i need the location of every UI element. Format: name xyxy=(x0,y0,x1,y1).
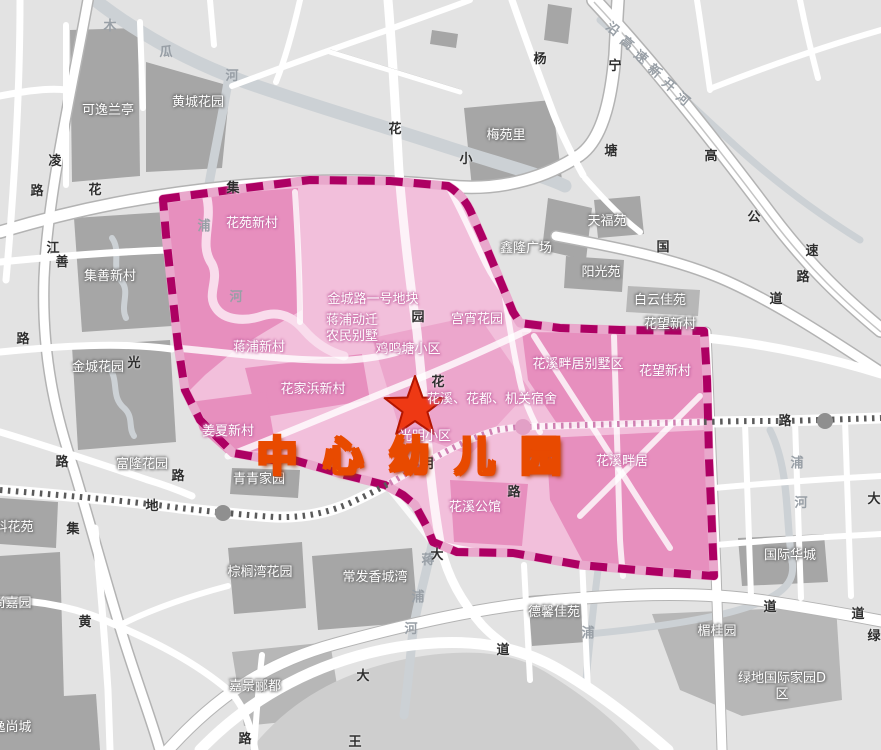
metro-station-dot xyxy=(817,413,833,429)
map-graphic xyxy=(0,0,881,750)
district-map-image: 可逸兰亭黄城花园梅苑里天福苑鑫隆广场阳光苑白云佳苑花望新村集善新村金城花园富隆花… xyxy=(0,0,881,750)
kindergarten-title: 中 心 幼 儿 园 xyxy=(257,424,567,482)
metro-station-dot xyxy=(215,505,231,521)
